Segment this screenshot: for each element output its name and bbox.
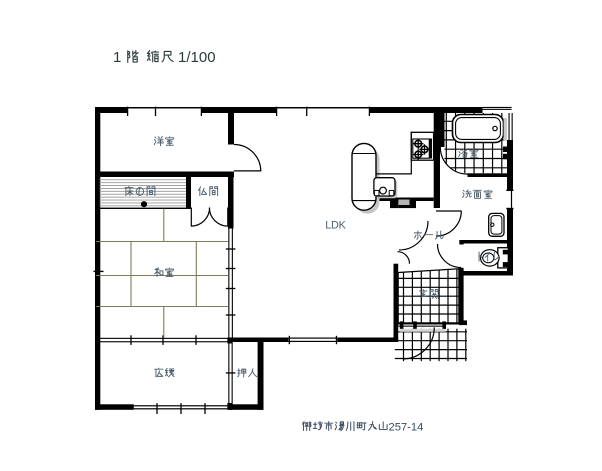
svg-text:LDK: LDK	[325, 220, 346, 232]
svg-text:1/100: 1/100	[178, 49, 216, 66]
svg-text:257-14: 257-14	[389, 422, 424, 434]
svg-text:1: 1	[113, 49, 121, 66]
